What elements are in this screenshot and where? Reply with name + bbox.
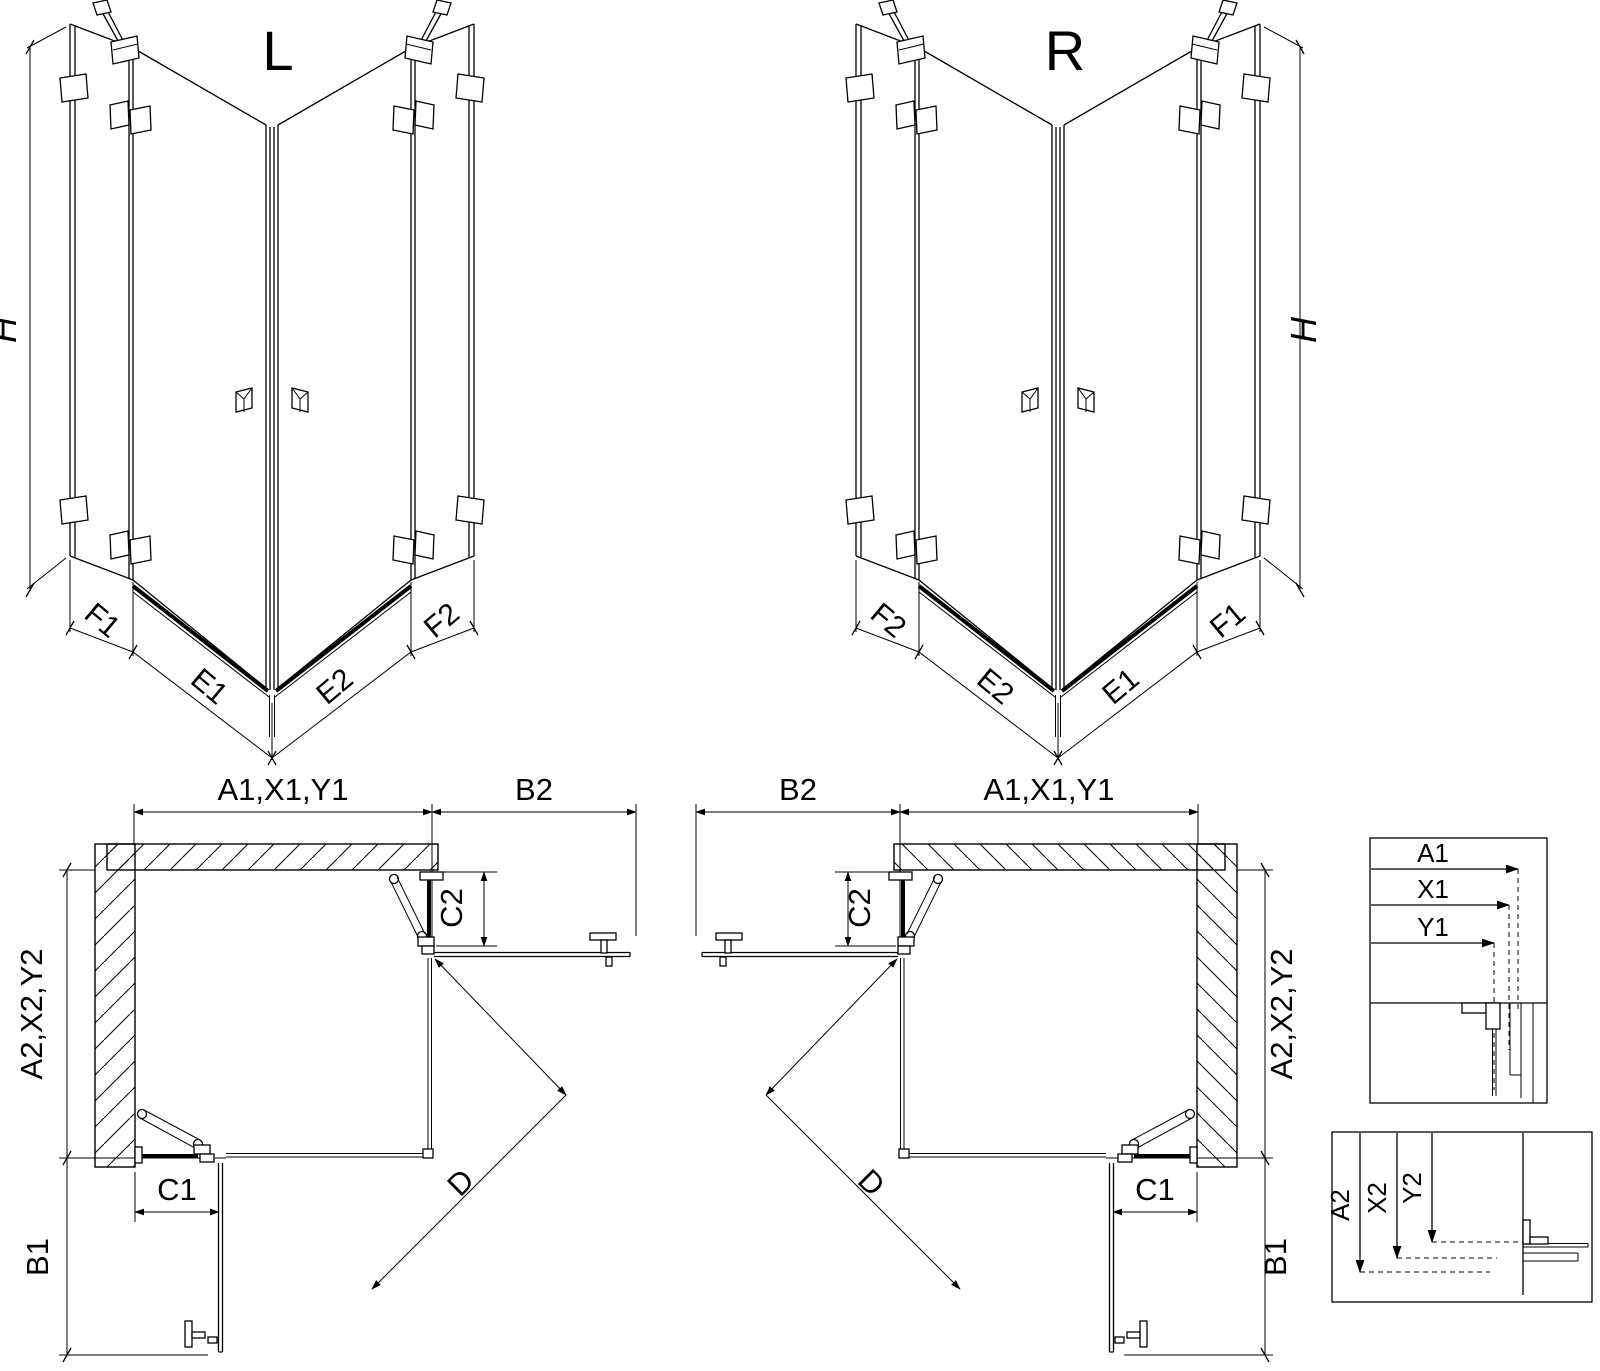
detail-depth-a2-label: A2: [1325, 1189, 1355, 1221]
iso-right-title: R: [1045, 19, 1085, 82]
detail-width-x1-label: X1: [1417, 874, 1449, 904]
plan-left-width-label: A1,X1,Y1: [218, 772, 349, 807]
detail-box-widths: [1370, 838, 1547, 1103]
plan-right-door-depth-label: B1: [1258, 1238, 1293, 1276]
shower-enclosure-diagram: L H F1 E1 E2 F2 R H F2 E2 E1 F1 A1,X1,Y1…: [0, 0, 1600, 1371]
plan-view-right: [696, 804, 1273, 1362]
plan-left-door-depth-label: B1: [20, 1238, 55, 1276]
technical-drawing-page: L H F1 E1 E2 F2 R H F2 E2 E1 F1 A1,X1,Y1…: [0, 0, 1600, 1371]
plan-left-diagonal-label: D: [440, 1162, 481, 1203]
iso-left-dim-f1: F1: [78, 597, 126, 645]
iso-right-dim-f1: F1: [1204, 597, 1252, 645]
plan-left-door-width-label: B2: [515, 772, 553, 807]
plan-right-diagonal-label: D: [851, 1162, 892, 1203]
plan-right-depth-label: A2,X2,Y2: [1264, 949, 1299, 1080]
iso-right-height-label: H: [1283, 316, 1324, 343]
plan-left-depth-label: A2,X2,Y2: [14, 949, 49, 1080]
iso-view-left: [26, 0, 484, 765]
iso-right-dim-e2: E2: [970, 662, 1019, 711]
iso-right-dim-f2: F2: [864, 597, 912, 645]
iso-left-title: L: [262, 19, 293, 82]
iso-right-dim-e1: E1: [1096, 662, 1145, 711]
iso-left-height-label: H: [0, 316, 24, 343]
detail-box-depths: [1332, 1132, 1592, 1302]
plan-right-door-width-label: B2: [779, 772, 817, 807]
plan-right-width-label: A1,X1,Y1: [984, 772, 1115, 807]
iso-left-dim-e1: E1: [184, 662, 233, 711]
plan-right-fixed-side-label: C2: [842, 888, 877, 928]
detail-depth-x2-label: X2: [1362, 1182, 1392, 1214]
detail-depth-y2-label: Y2: [1397, 1172, 1427, 1204]
iso-left-dim-e2: E2: [310, 662, 359, 711]
iso-view-right: [846, 0, 1304, 765]
detail-width-y1-label: Y1: [1417, 912, 1449, 942]
detail-width-a1-label: A1: [1417, 838, 1449, 868]
plan-right-fixed-bottom-label: C1: [1135, 1172, 1175, 1207]
plan-left-fixed-bottom-label: C1: [157, 1172, 197, 1207]
iso-left-dim-f2: F2: [418, 597, 466, 645]
plan-view-left: [59, 804, 636, 1362]
plan-left-fixed-side-label: C2: [434, 888, 469, 928]
